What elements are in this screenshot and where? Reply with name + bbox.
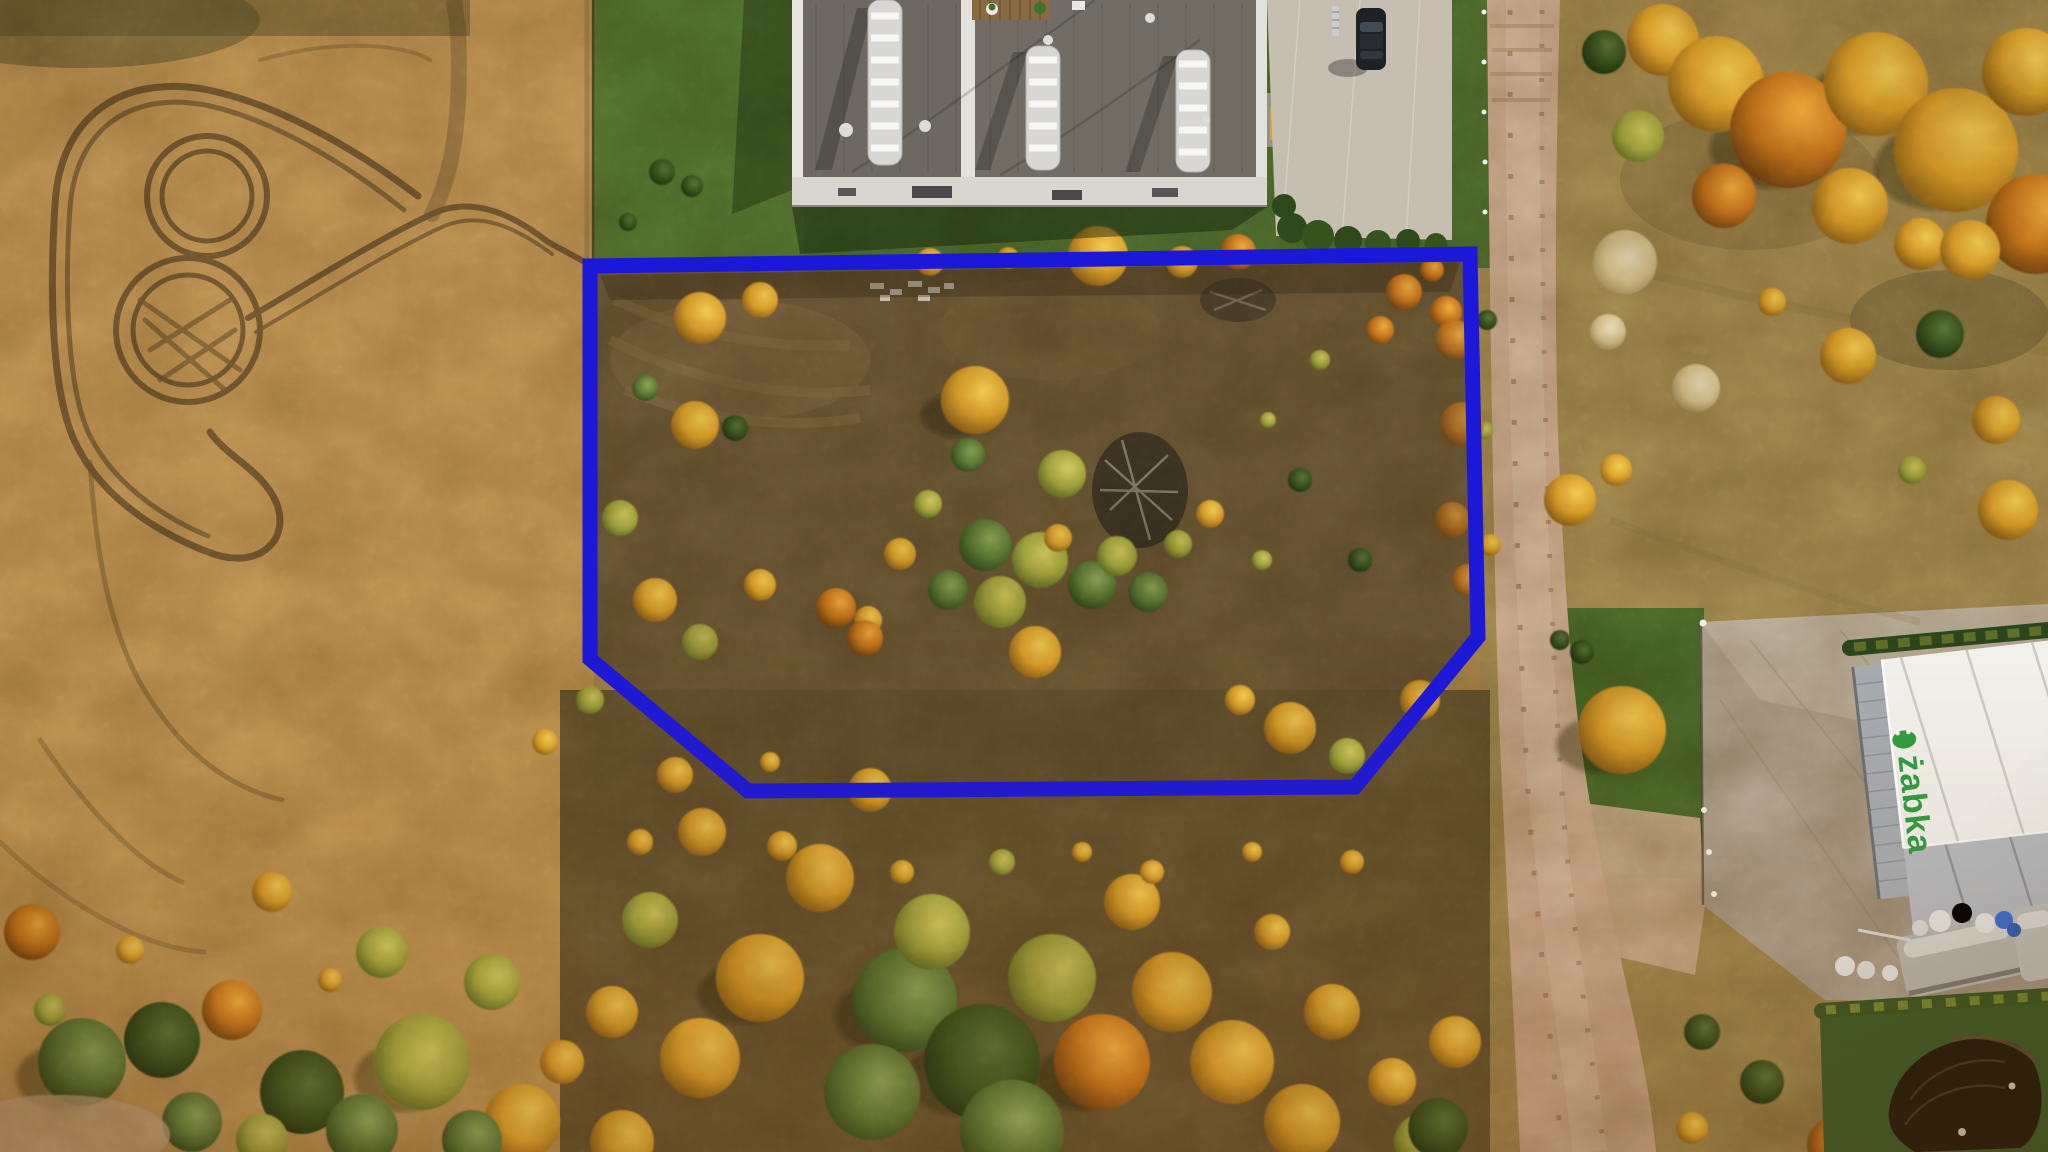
aerial-photo: żabka [0, 0, 2048, 1152]
aerial-scene: żabka [0, 0, 2048, 1152]
vignette [0, 0, 2048, 1152]
